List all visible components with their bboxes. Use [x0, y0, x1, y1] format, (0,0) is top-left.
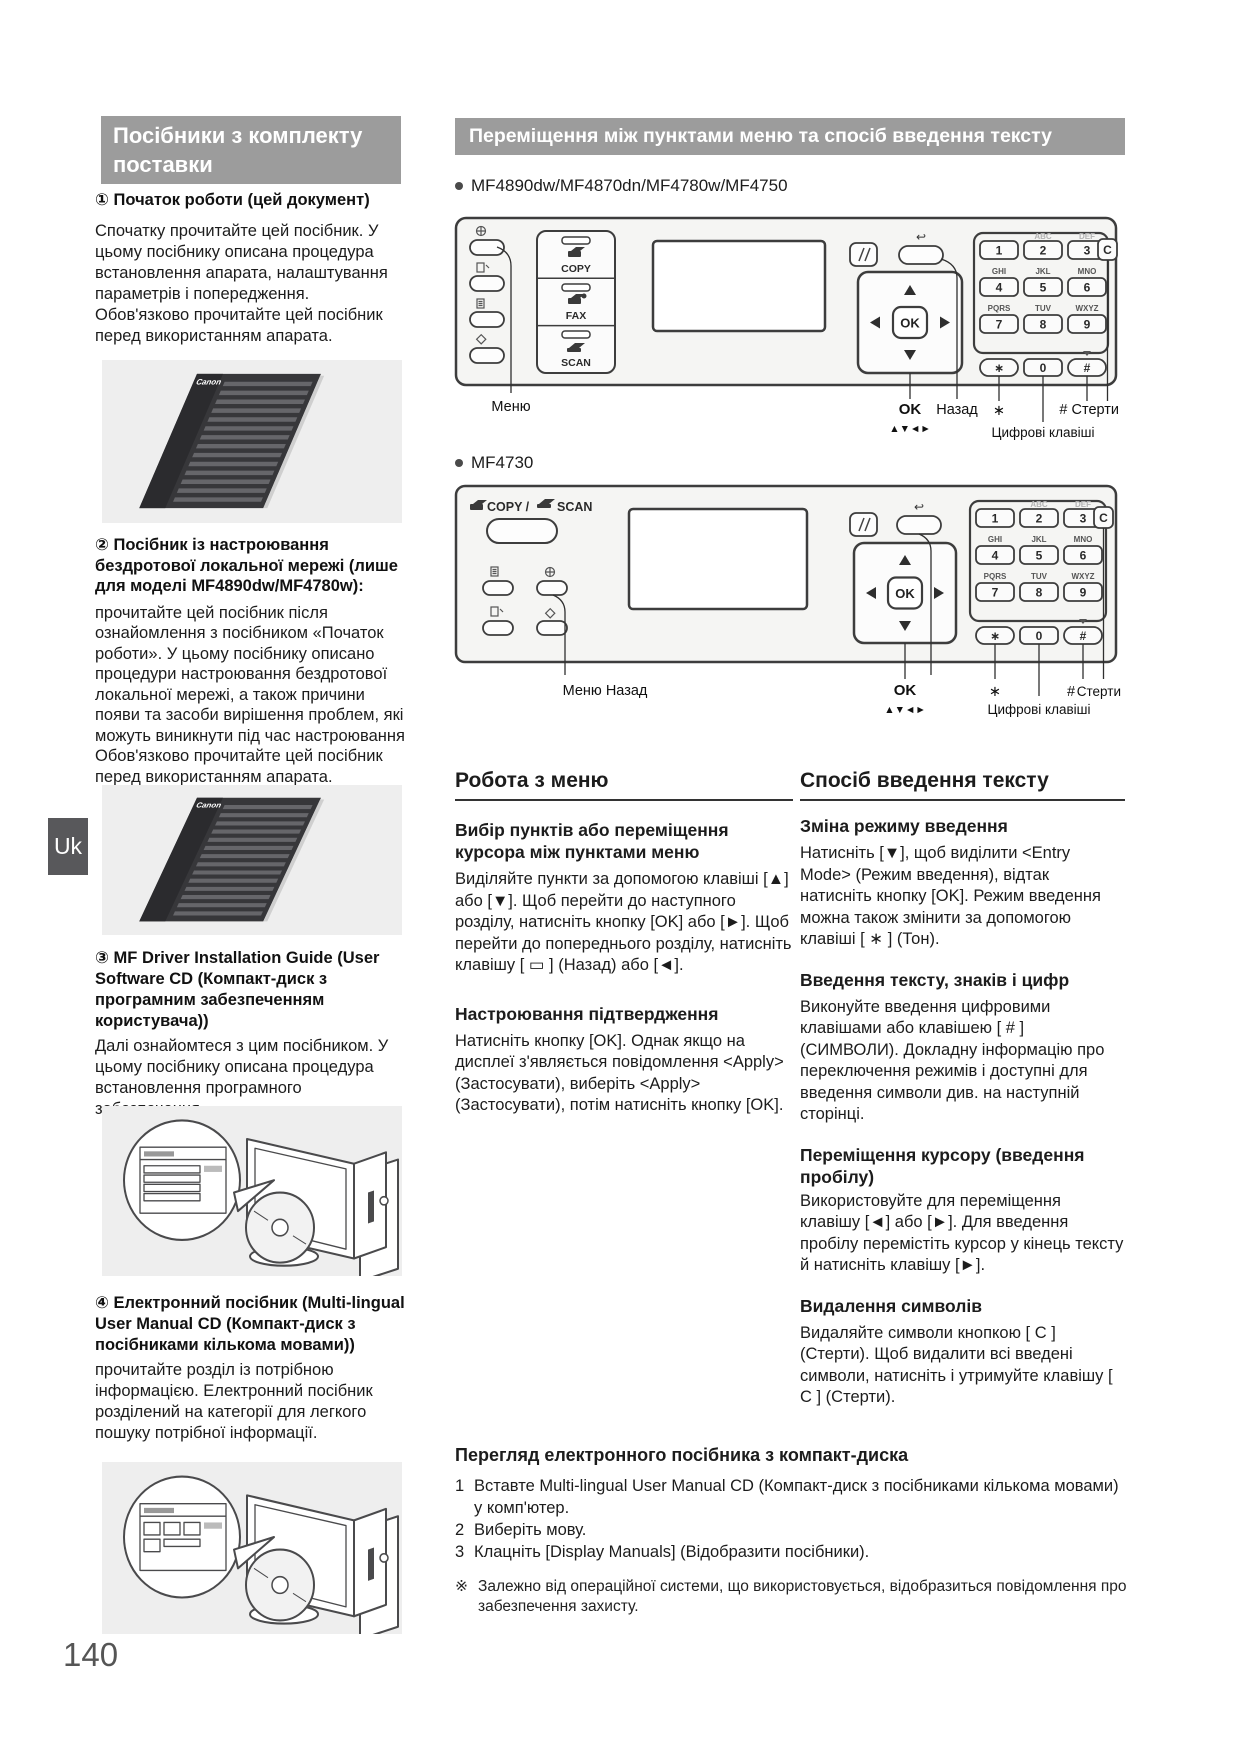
star-callout-label: ∗	[989, 684, 1001, 700]
os-security-note: ※ Залежно від операційної системи, що ви…	[455, 1577, 1127, 1617]
digit-1: 1	[996, 244, 1003, 258]
hash-key-label: #	[1080, 629, 1087, 643]
reset-key	[850, 513, 877, 536]
digit-8: 8	[1036, 586, 1043, 600]
tower-button	[380, 1197, 388, 1205]
step-text: Клацніть [Display Manuals] (Відобразити …	[474, 1541, 1127, 1563]
steps-list: 1 Вставте Multi-lingual User Manual CD (…	[455, 1475, 1127, 1563]
digit-5: 5	[1040, 281, 1047, 295]
report-key	[470, 312, 504, 327]
menu-back-callout-label: Меню Назад	[563, 683, 648, 699]
letters-tuv: TUV	[1035, 304, 1052, 313]
booklet-illustration: Canon	[102, 785, 402, 935]
ok-callout-label: OK	[894, 682, 917, 699]
menu-key	[537, 581, 567, 595]
subsection-body: Видаляйте символи кнопкою [ C ] (Стерти)…	[800, 1323, 1125, 1409]
star-key-label: ∗	[990, 629, 1000, 643]
section-emanual: ④ Електронний посібник (Multi-lingual Us…	[95, 1293, 407, 1444]
cd-install-illustration	[102, 1462, 402, 1634]
digit-3: 3	[1080, 512, 1087, 526]
report-key	[483, 581, 513, 595]
letters-pqrs: PQRS	[988, 304, 1011, 313]
control-panel-diagram-mf4890: COPY FAX SCAN ↩ OK	[453, 215, 1121, 443]
numeric-keys-callout-label: Цифрові клавіші	[987, 702, 1090, 717]
digit-4: 4	[992, 549, 999, 563]
section-title: Перегляд електронного посібника з компак…	[455, 1443, 1127, 1467]
digit-3: 3	[1084, 244, 1091, 258]
language-tab: Uk	[48, 818, 88, 875]
bullet-icon	[455, 182, 463, 190]
back-arrow-icon: ↩	[916, 230, 926, 244]
step-number: 1	[455, 1475, 474, 1519]
column-title: Робота з меню	[455, 768, 793, 801]
subsection-title: Переміщення курсору (введення пробілу)	[800, 1144, 1125, 1188]
step-text: Вставте Multi-lingual User Manual CD (Ко…	[474, 1475, 1127, 1519]
letters-mno: MNO	[1074, 535, 1093, 544]
control-panel-diagram-mf4730: COPY / SCAN ↩	[453, 483, 1121, 721]
step-item: 3 Клацніть [Display Manuals] (Відобразит…	[455, 1541, 1127, 1563]
step-item: 2 Виберіть мову.	[455, 1519, 1127, 1541]
arrows-callout-label: ▲▼◄►	[889, 423, 931, 435]
tower-slot	[368, 1190, 374, 1223]
model-list-b: MF4730	[455, 453, 533, 473]
emanual-viewing-section: Перегляд електронного посібника з компак…	[455, 1443, 1127, 1617]
digit-6: 6	[1080, 549, 1087, 563]
section-title: ① Початок роботи (цей документ)	[95, 190, 407, 211]
section-body: прочитайте цей посібник після ознайомлен…	[95, 603, 407, 788]
ok-key-label: OK	[895, 586, 915, 601]
letters-pqrs: PQRS	[984, 572, 1007, 581]
subsection-title: Зміна режиму введення	[800, 815, 1125, 837]
digit-6: 6	[1084, 281, 1091, 295]
ok-key-label: OK	[900, 316, 920, 331]
letters-wxyz: WXYZ	[1075, 304, 1098, 313]
right-section-header: Переміщення між пунктами меню та спосіб …	[455, 118, 1125, 155]
digit-0: 0	[1036, 629, 1043, 643]
star-callout-label: ∗	[993, 403, 1005, 419]
numeric-keys-callout-label: Цифрові клавіші	[991, 425, 1094, 440]
lcd-display	[653, 241, 825, 331]
cd-hub	[272, 1219, 288, 1235]
tower-slot	[368, 1547, 374, 1580]
section-getting-started: ① Початок роботи (цей документ) Спочатку…	[95, 190, 407, 347]
digit-5: 5	[1036, 549, 1043, 563]
subsection-body: Натисніть кнопку [OK]. Однак якщо на дис…	[455, 1031, 793, 1117]
paper-settings-key	[483, 621, 513, 635]
digit-2: 2	[1036, 512, 1043, 526]
back-key	[897, 516, 941, 534]
letters-def: DEF	[1079, 232, 1095, 241]
canon-logo: Canon	[195, 377, 224, 387]
cd-install-illustration	[102, 1106, 402, 1276]
hash-key-label: #	[1084, 361, 1091, 375]
canon-logo: Canon	[194, 801, 223, 809]
installer-dialog	[140, 1504, 226, 1571]
menu-callout-label: Меню	[491, 399, 530, 415]
section-title: ② Посібник із настроювання бездротової л…	[95, 535, 407, 597]
cd-hub	[272, 1577, 288, 1594]
bullet-icon	[455, 459, 463, 467]
model-list-a: MF4890dw/MF4870dn/MF4780w/MF4750	[455, 176, 788, 196]
letters-jkl: JKL	[1035, 267, 1050, 276]
back-callout-label: Назад	[936, 402, 978, 418]
letters-ghi: GHI	[992, 267, 1006, 276]
copy-label: COPY	[561, 263, 591, 275]
manual-page: Uk Посібники з комплекту поставки ① Поча…	[0, 0, 1241, 1754]
section-driver-guide: ③ MF Driver Installation Guide (User Sof…	[95, 948, 407, 1120]
menu-operation-column: Робота з меню Вибір пунктів або переміще…	[455, 768, 793, 1117]
digit-9: 9	[1084, 318, 1091, 332]
letters-wxyz: WXYZ	[1071, 572, 1094, 581]
letters-def: DEF	[1075, 500, 1091, 509]
step-number: 3	[455, 1541, 474, 1563]
text-entry-column: Спосіб введення тексту Зміна режиму введ…	[800, 768, 1125, 1409]
id-copy-key	[470, 348, 504, 363]
subsection-body: Використовуйте для переміщення клавішу […	[800, 1191, 1125, 1277]
letters-abc: ABC	[1034, 232, 1052, 241]
digit-9: 9	[1080, 586, 1087, 600]
subsection-body: Виконуйте введення цифровими клавішами а…	[800, 997, 1125, 1126]
hash-clear-callout-label: # Стерти	[1059, 402, 1119, 418]
id-copy-key	[537, 621, 567, 635]
letters-mno: MNO	[1078, 267, 1097, 276]
note-text: Залежно від операційної системи, що вико…	[478, 1577, 1127, 1617]
scan-led	[562, 331, 590, 338]
digit-4: 4	[996, 281, 1003, 295]
digit-1: 1	[992, 512, 999, 526]
model-names: MF4890dw/MF4870dn/MF4780w/MF4750	[471, 176, 788, 196]
copy-scan-key	[487, 519, 557, 543]
menu-icon	[477, 227, 486, 236]
section-title: ④ Електронний посібник (Multi-lingual Us…	[95, 1293, 407, 1356]
subsection-title: Вибір пунктів або переміщення курсора мі…	[455, 819, 793, 863]
menu-icon	[546, 568, 555, 577]
scan-label: SCAN	[557, 500, 592, 514]
letters-tuv: TUV	[1031, 572, 1048, 581]
section-wireless-guide: ② Посібник із настроювання бездротової л…	[95, 535, 407, 787]
clear-key-label: C	[1099, 511, 1108, 525]
lcd-display	[629, 509, 807, 609]
paper-settings-key	[470, 276, 504, 291]
subsection-title: Введення тексту, знаків і цифр	[800, 969, 1125, 991]
reset-key	[850, 243, 877, 266]
digit-7: 7	[996, 318, 1003, 332]
copy-label: COPY /	[487, 500, 530, 514]
section-body: Спочатку прочитайте цей посібник. У цьом…	[95, 221, 407, 347]
hash-callout-label: #	[1067, 684, 1075, 700]
copy-led	[562, 237, 590, 244]
step-number: 2	[455, 1519, 474, 1541]
language-tab-label: Uk	[54, 833, 82, 860]
section-body: прочитайте розділ із потрібною інформаці…	[95, 1360, 407, 1444]
scan-label: SCAN	[561, 357, 591, 369]
arrows-callout-label: ▲▼◄►	[884, 704, 926, 716]
subsection-title: Видалення символів	[800, 1295, 1125, 1317]
tower-button	[380, 1554, 388, 1562]
digit-0: 0	[1040, 361, 1047, 375]
fax-led	[562, 284, 590, 291]
ok-callout-label: OK	[899, 401, 922, 418]
step-text: Виберіть мову.	[474, 1519, 1127, 1541]
letters-abc: ABC	[1030, 500, 1048, 509]
model-names: MF4730	[471, 453, 533, 473]
clear-key-label: C	[1103, 243, 1112, 257]
digit-2: 2	[1040, 244, 1047, 258]
page-number: 140	[63, 1636, 118, 1674]
letters-jkl: JKL	[1031, 535, 1046, 544]
digit-8: 8	[1040, 318, 1047, 332]
reference-mark-icon: ※	[455, 1577, 468, 1617]
letters-ghi: GHI	[988, 535, 1002, 544]
subsection-title: Настроювання підтвердження	[455, 1003, 793, 1025]
left-section-header: Посібники з комплекту поставки	[101, 116, 401, 184]
installer-dialog	[140, 1147, 226, 1213]
subsection-body: Натисніть [▼], щоб виділити <Entry Mode>…	[800, 843, 1125, 951]
star-key-label: ∗	[994, 361, 1004, 375]
subsection-body: Виділяйте пункти за допомогою клавіші [▲…	[455, 869, 793, 977]
step-item: 1 Вставте Multi-lingual User Manual CD (…	[455, 1475, 1127, 1519]
booklet-illustration: Canon	[102, 360, 402, 523]
digit-7: 7	[992, 586, 999, 600]
clear-callout-label: Стерти	[1077, 684, 1121, 699]
back-key	[899, 246, 943, 264]
column-title: Спосіб введення тексту	[800, 768, 1125, 801]
fax-label: FAX	[566, 310, 586, 322]
section-title: ③ MF Driver Installation Guide (User Sof…	[95, 948, 407, 1032]
back-arrow-icon: ↩	[914, 500, 924, 514]
